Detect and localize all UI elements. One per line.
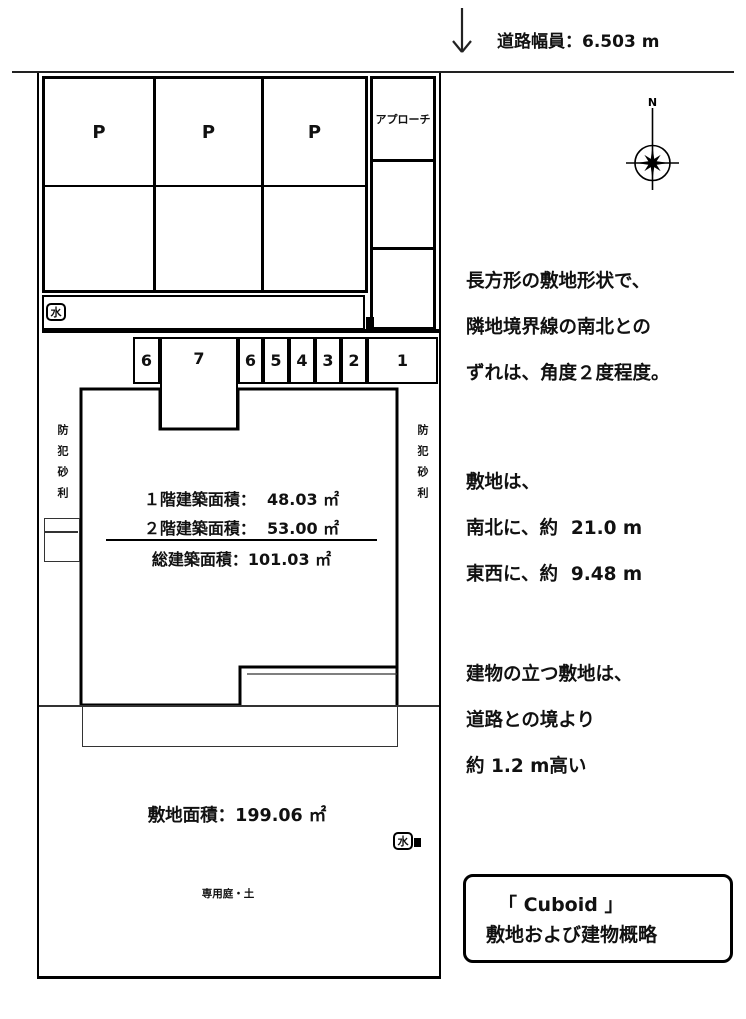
meter-box-divider bbox=[45, 531, 78, 533]
parking-divider-horizontal bbox=[45, 185, 365, 187]
parking-stall-1-label: P bbox=[45, 79, 153, 185]
road-width-label: 道路幅員：6.503 m bbox=[497, 27, 659, 52]
note-shape-line3: ずれは、角度２度程度。 bbox=[466, 361, 670, 386]
note-size: 敷地は、 南北に、約 21.0 m 東西に、約 9.48 m bbox=[466, 470, 642, 587]
gravel-label-right: 防犯砂利 bbox=[408, 424, 430, 519]
note-shape-line2: 隣地境界線の南北との bbox=[466, 315, 670, 340]
approach-column: アプローチ bbox=[370, 76, 436, 330]
title-box-line2: 敷地および建物概略 bbox=[466, 917, 730, 947]
bay-box-2: 2 bbox=[341, 337, 367, 384]
retaining-line bbox=[42, 329, 439, 333]
bay-box-6a: 6 bbox=[133, 337, 160, 384]
bay-box-3: 3 bbox=[315, 337, 341, 384]
parking-stall-3-label: P bbox=[264, 79, 365, 185]
site-area-label: 敷地面積：199.06 ㎡ bbox=[92, 802, 382, 826]
title-box: 「 Cuboid 」 敷地および建物概略 bbox=[463, 874, 733, 963]
garden-label: 専用庭・土 bbox=[168, 886, 288, 900]
water-meter-bottom: 水 bbox=[393, 832, 413, 850]
bay-box-4: 4 bbox=[289, 337, 315, 384]
road-direction-arrow-icon bbox=[445, 5, 480, 60]
note-size-line1: 敷地は、 bbox=[466, 470, 642, 495]
water-valve-mark bbox=[414, 838, 421, 847]
gravel-label-left: 防犯砂利 bbox=[48, 424, 70, 519]
utility-strip: 水 bbox=[42, 295, 365, 330]
note-shape-line1: 長方形の敷地形状で、 bbox=[466, 269, 670, 294]
note-elevation-line3: 約 1.2 m高い bbox=[466, 754, 633, 779]
veranda-band bbox=[82, 706, 398, 747]
note-elevation-line2: 道路との境より bbox=[466, 708, 633, 733]
site-plan-page: 道路幅員：6.503 m P P P アプローチ 水 6 7 6 5 4 3 2… bbox=[0, 0, 746, 1019]
floor2-area-label: ２階建築面積： 53.00 ㎡ bbox=[100, 516, 383, 538]
approach-label: アプローチ bbox=[373, 79, 433, 159]
note-shape: 長方形の敷地形状で、 隣地境界線の南北との ずれは、角度２度程度。 bbox=[466, 269, 670, 386]
bay-box-6b: 6 bbox=[238, 337, 263, 384]
total-area-label: 総建築面積：101.03 ㎡ bbox=[100, 547, 383, 569]
compass-north-label: N bbox=[648, 96, 657, 109]
compass-icon: N bbox=[615, 93, 690, 198]
bay-box-5: 5 bbox=[263, 337, 289, 384]
note-elevation: 建物の立つ敷地は、 道路との境より 約 1.2 m高い bbox=[466, 662, 633, 779]
approach-divider-1 bbox=[373, 159, 433, 162]
bay-box-1: 1 bbox=[367, 337, 438, 384]
title-box-line1: 「 Cuboid 」 bbox=[466, 877, 730, 917]
approach-step bbox=[366, 317, 374, 330]
note-size-line2: 南北に、約 21.0 m bbox=[466, 516, 642, 541]
water-meter-top: 水 bbox=[46, 303, 66, 321]
floor1-area-label: １階建築面積： 48.03 ㎡ bbox=[100, 487, 383, 509]
approach-divider-2 bbox=[373, 247, 433, 250]
meter-box bbox=[44, 518, 80, 562]
parking-area: P P P bbox=[42, 76, 368, 293]
note-elevation-line1: 建物の立つ敷地は、 bbox=[466, 662, 633, 687]
parking-stall-2-label: P bbox=[156, 79, 261, 185]
sum-rule-line bbox=[106, 539, 377, 541]
note-size-line3: 東西に、約 9.48 m bbox=[466, 562, 642, 587]
